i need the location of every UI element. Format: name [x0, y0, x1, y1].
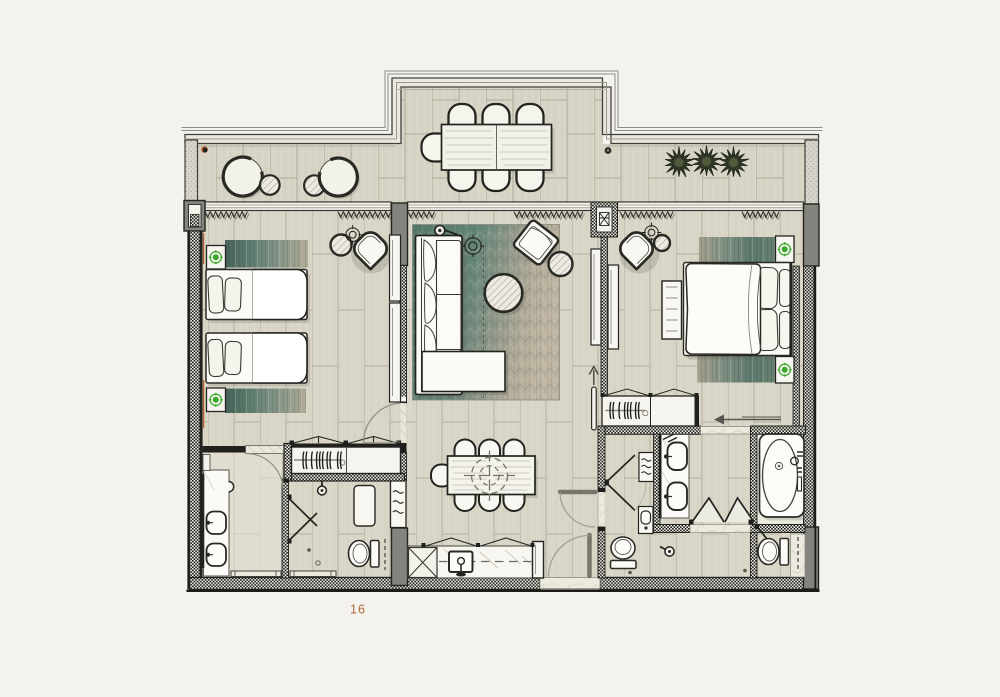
svg-text:16: 16 [350, 603, 366, 617]
